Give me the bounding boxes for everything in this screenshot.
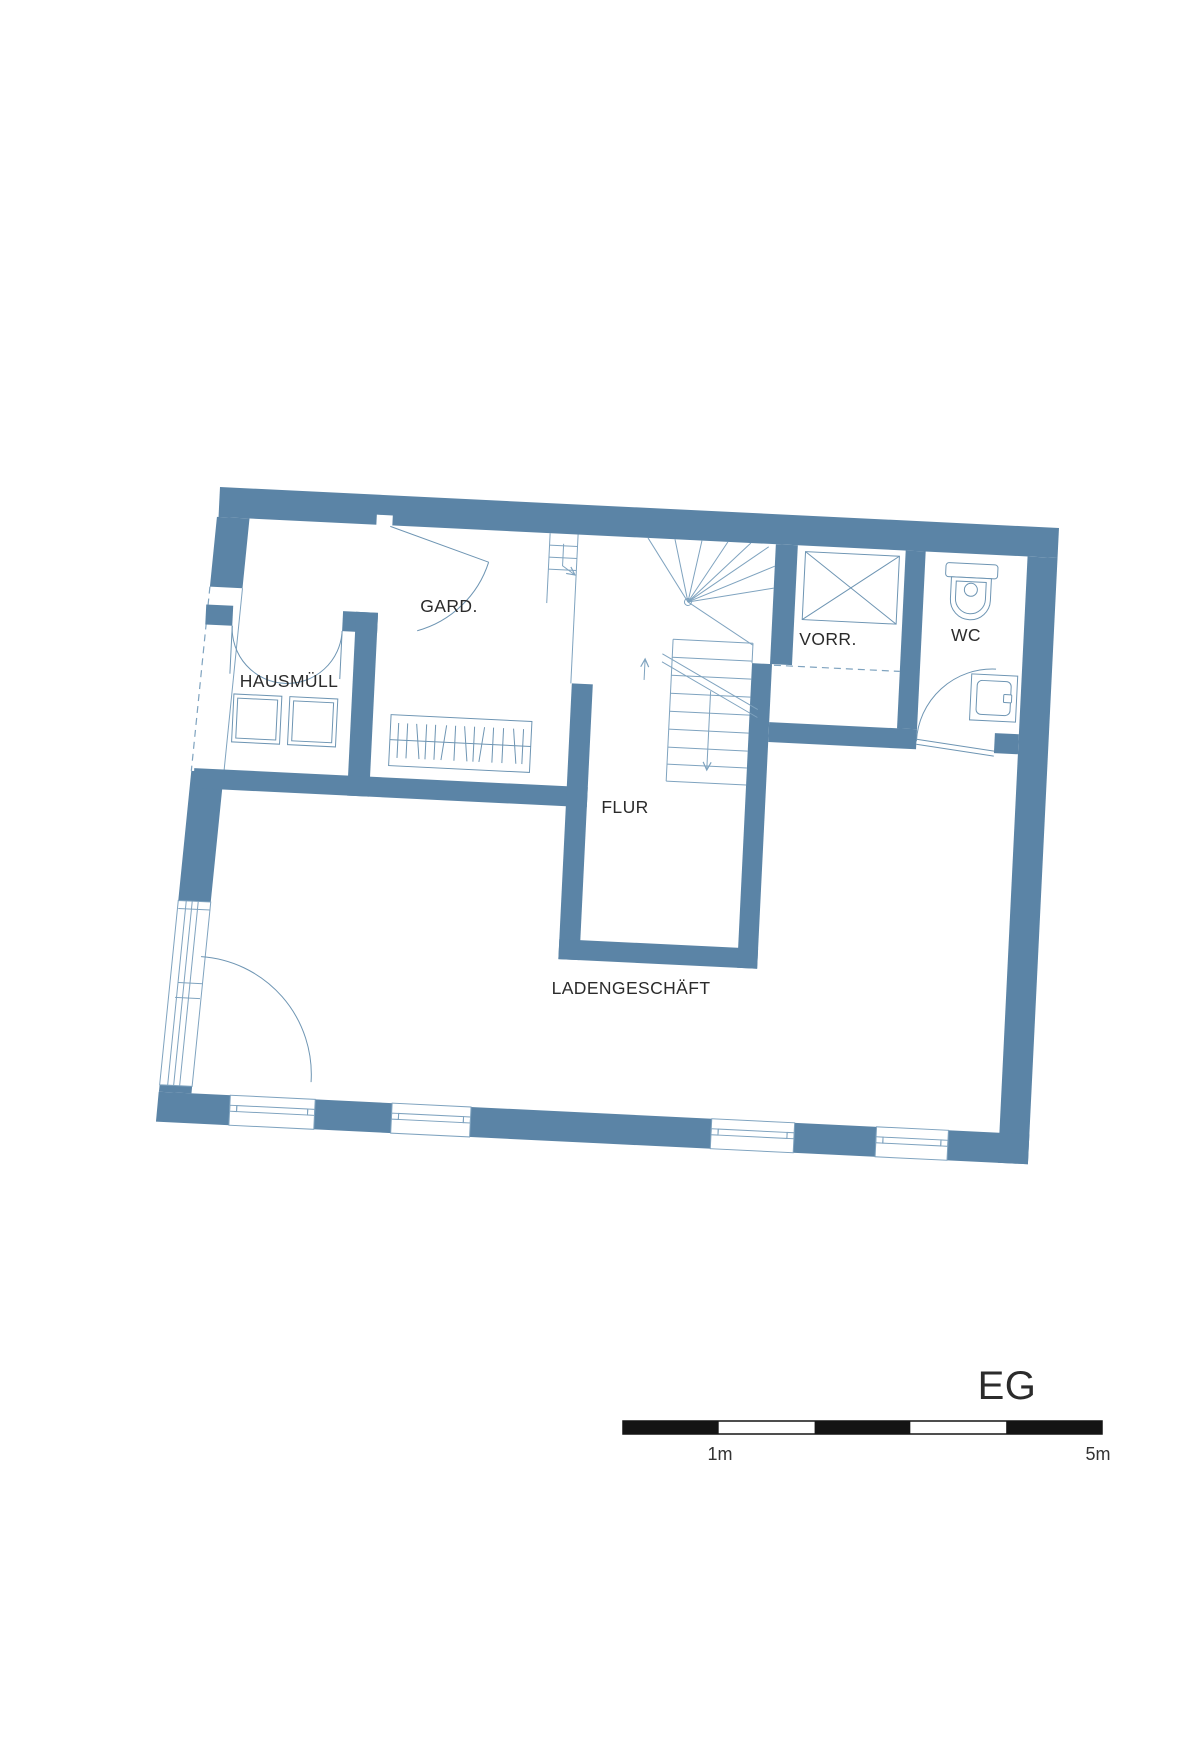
gard-door-frame (376, 515, 393, 527)
building-plan (156, 485, 1059, 1164)
scale-label-5m: 5m (1085, 1444, 1110, 1464)
wall-hausmuell-door-stub-left (205, 604, 233, 625)
wall-left-upper (210, 517, 250, 589)
room-label-flur: FLUR (601, 797, 648, 817)
wall-top (219, 487, 1059, 558)
room-label-ladengeschaeft: LADENGESCHÄFT (552, 978, 711, 998)
room-label-hausmuell: HAUSMÜLL (240, 671, 339, 691)
washbasin-fixture (970, 674, 1018, 722)
room-label-vorr: VORR. (799, 629, 856, 649)
room-labels: HAUSMÜLL GARD. VORR. WC FLUR LADENGESCHÄ… (240, 596, 981, 998)
window-icon (229, 1095, 315, 1129)
gard-door (385, 526, 490, 634)
window-icon (710, 1119, 794, 1153)
floor-plan-svg: HAUSMÜLL GARD. VORR. WC FLUR LADENGESCHÄ… (0, 0, 1200, 1754)
wall-flur-left (558, 683, 592, 960)
stair-arrow-down (707, 691, 711, 769)
wall-vorrat-left (770, 544, 798, 665)
room-label-wc: WC (951, 625, 981, 645)
wall-band-left (768, 722, 917, 749)
waste-bins (232, 694, 338, 747)
wardrobe-fixture (389, 715, 532, 773)
floor-plan-page: HAUSMÜLL GARD. VORR. WC FLUR LADENGESCHÄ… (0, 0, 1200, 1754)
wall-under-hausmuell-gard (193, 768, 588, 807)
interior-walls (186, 516, 1028, 981)
entrance-door (160, 900, 320, 1092)
wall-band-right-stub (994, 733, 1019, 754)
room-label-gard: GARD. (420, 596, 477, 616)
window-icon (391, 1103, 471, 1137)
scale-label-1m: 1m (707, 1444, 732, 1464)
wall-vorrat-wc (897, 551, 926, 730)
shaft-x-box (802, 552, 899, 625)
floor-label: EG (978, 1364, 1037, 1408)
wall-hausmuell-right (347, 612, 378, 797)
stair-arrow-up (644, 660, 645, 680)
wall-right (998, 556, 1058, 1164)
wall-flur-bottom (558, 939, 758, 969)
wall-left-middle (178, 771, 224, 903)
entrance-frame (160, 900, 211, 1087)
scale-bar: 1m 5m (623, 1421, 1111, 1464)
gard-door-leaf (389, 526, 490, 562)
entrance-door-arc (195, 957, 317, 1083)
vorrat-dashed-line (774, 665, 900, 671)
window-icon (875, 1127, 948, 1160)
toilet-fixture (943, 563, 998, 621)
